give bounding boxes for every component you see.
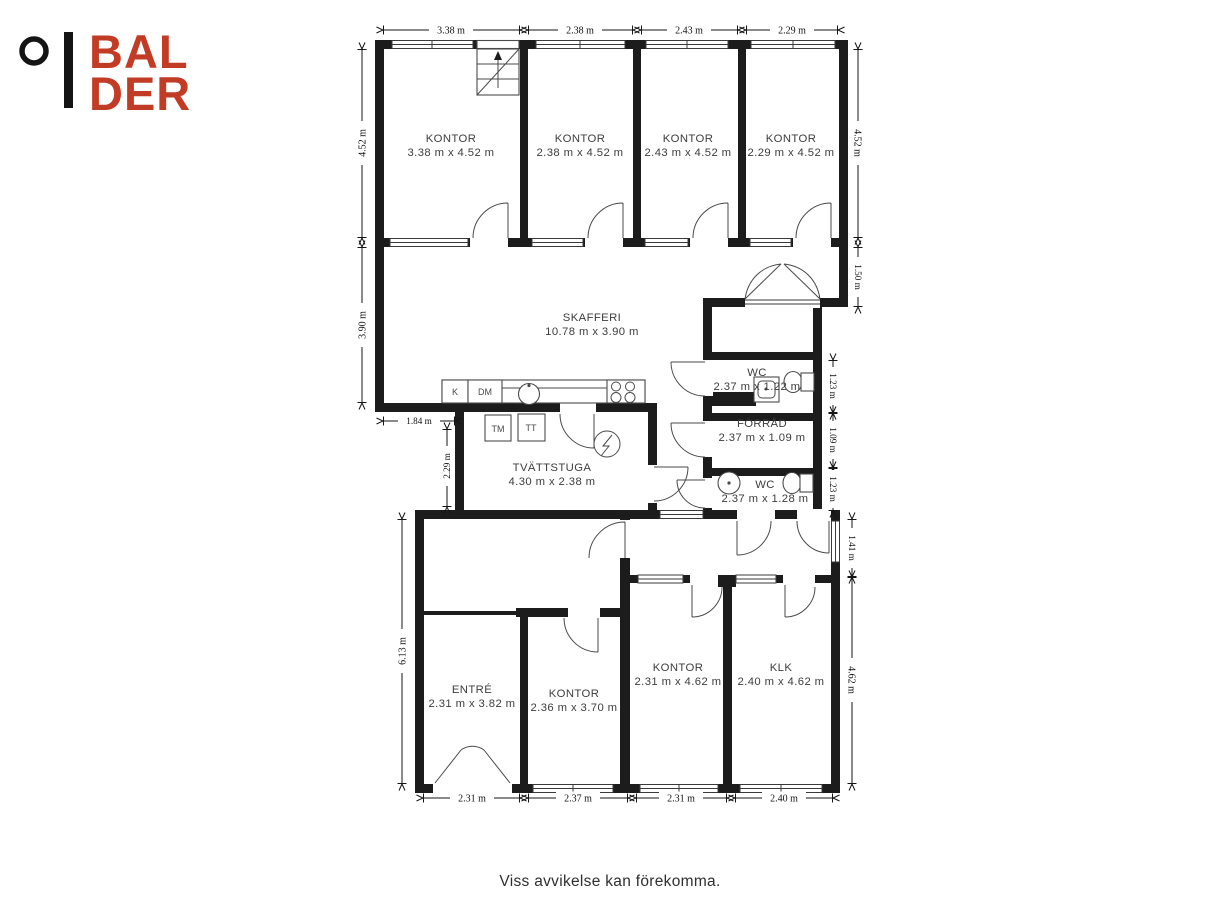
electrical-symbol-icon (594, 431, 620, 457)
room-label-klk: KLK 2.40 m x 4.62 m (738, 662, 825, 688)
washing-machine-label: TM (492, 424, 505, 434)
room-name: KONTOR (653, 662, 704, 674)
dim-left-1: 4.52 m (358, 129, 369, 157)
room-name: KONTOR (549, 688, 600, 700)
dim-right-7: 4.62 m (846, 666, 857, 694)
fridge-label: K (452, 387, 458, 397)
stove-icon (607, 380, 645, 403)
room-label-tvattstuga: TVÄTTSTUGA 4.30 m x 2.38 m (509, 462, 596, 488)
room-name: KONTOR (663, 133, 714, 145)
dim-right-3: 1.23 m (828, 373, 838, 399)
dim-right-1: 4.52 m (852, 129, 863, 157)
toilet-icon (783, 473, 813, 494)
dim-right-4: 1.09 m (828, 427, 838, 453)
room-dims: 2.29 m x 4.52 m (748, 147, 835, 159)
room-name: WC (755, 479, 775, 491)
room-label-entre: ENTRÉ 2.31 m x 3.82 m (429, 683, 516, 710)
laundry-appliances: TM TT (485, 414, 545, 441)
dim-bottom-1: 2.31 m (458, 794, 486, 805)
dim-top-4: 2.29 m (778, 26, 806, 37)
dim-left-3: 1.84 m (406, 416, 432, 426)
room-label-skafferi: SKAFFERI 10.78 m x 3.90 m (545, 312, 639, 338)
room-label-kontor-5: KONTOR 2.36 m x 3.70 m (531, 688, 618, 714)
room-label-kontor-4: KONTOR 2.29 m x 4.52 m (748, 133, 835, 159)
dim-bottom-4: 2.40 m (770, 794, 798, 805)
floorplan-canvas: K DM TM TT (0, 0, 1220, 915)
dim-left-4: 2.29 m (442, 453, 452, 479)
dim-right-2: 1.50 m (853, 264, 863, 290)
room-name: KONTOR (766, 133, 817, 145)
room-dims: 2.36 m x 3.70 m (531, 702, 618, 714)
room-name: KONTOR (555, 133, 606, 145)
room-dims: 2.40 m x 4.62 m (738, 676, 825, 688)
dim-left-2: 3.90 m (358, 311, 369, 339)
room-name: KLK (770, 662, 793, 674)
room-name: SKAFFERI (563, 312, 621, 324)
room-dims: 2.31 m x 3.82 m (429, 698, 516, 710)
dim-right-6: 1.41 m (847, 535, 857, 561)
room-name: TVÄTTSTUGA (513, 462, 592, 474)
room-dims: 2.43 m x 4.52 m (645, 147, 732, 159)
room-dims: 2.37 m x 1.28 m (722, 493, 809, 505)
dim-right-5: 1.23 m (828, 476, 838, 502)
room-dims: 2.37 m x 1.22 m (714, 381, 801, 393)
floorplan-page: BAL DER (0, 0, 1220, 915)
room-dims: 2.38 m x 4.52 m (537, 147, 624, 159)
dim-bottom-3: 2.31 m (667, 794, 695, 805)
room-dims: 2.37 m x 1.09 m (719, 432, 806, 444)
room-dims: 2.31 m x 4.62 m (635, 676, 722, 688)
dim-top-1: 3.38 m (437, 26, 465, 37)
dim-top-3: 2.43 m (675, 26, 703, 37)
room-name: WC (747, 367, 767, 379)
dim-left-5: 6.13 m (398, 637, 409, 665)
room-label-kontor-2: KONTOR 2.38 m x 4.52 m (537, 133, 624, 159)
dishwasher-label: DM (478, 387, 492, 397)
room-label-kontor-3: KONTOR 2.43 m x 4.52 m (645, 133, 732, 159)
room-dims: 4.30 m x 2.38 m (509, 476, 596, 488)
room-dims: 3.38 m x 4.52 m (408, 147, 495, 159)
tumble-dryer-label: TT (526, 423, 537, 433)
room-label-forrad: FÖRRÅD 2.37 m x 1.09 m (719, 417, 806, 444)
room-name: FÖRRÅD (737, 417, 787, 430)
room-name: ENTRÉ (452, 683, 492, 696)
room-label-kontor-1: KONTOR 3.38 m x 4.52 m (408, 133, 495, 159)
kitchen-counter: K DM (442, 380, 645, 405)
room-name: KONTOR (426, 133, 477, 145)
dim-top-2: 2.38 m (566, 26, 594, 37)
dim-bottom-2: 2.37 m (564, 794, 592, 805)
room-dims: 10.78 m x 3.90 m (545, 326, 639, 338)
room-label-kontor-6: KONTOR 2.31 m x 4.62 m (635, 662, 722, 688)
disclaimer-text: Viss avvikelse kan förekomma. (0, 873, 1220, 891)
stair-symbol (477, 41, 519, 96)
